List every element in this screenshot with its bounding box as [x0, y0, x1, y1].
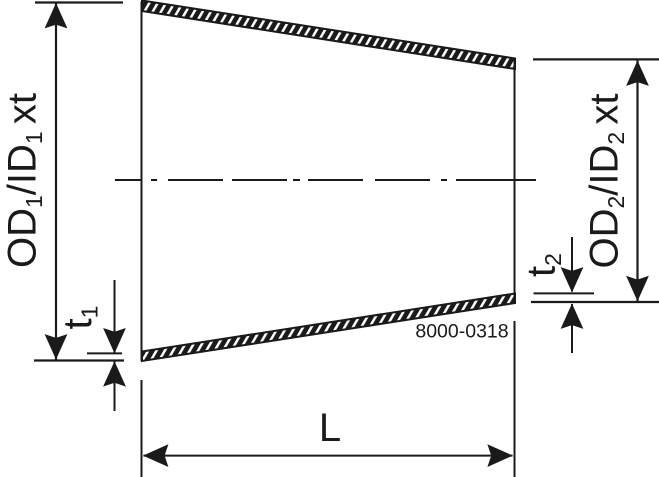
- svg-text:L: L: [319, 406, 341, 450]
- svg-text:8000-0318: 8000-0318: [415, 321, 508, 343]
- svg-text:OD2/ID2 xt: OD2/ID2 xt: [583, 94, 630, 269]
- svg-text:OD1/ID1 xt: OD1/ID1 xt: [1, 93, 48, 268]
